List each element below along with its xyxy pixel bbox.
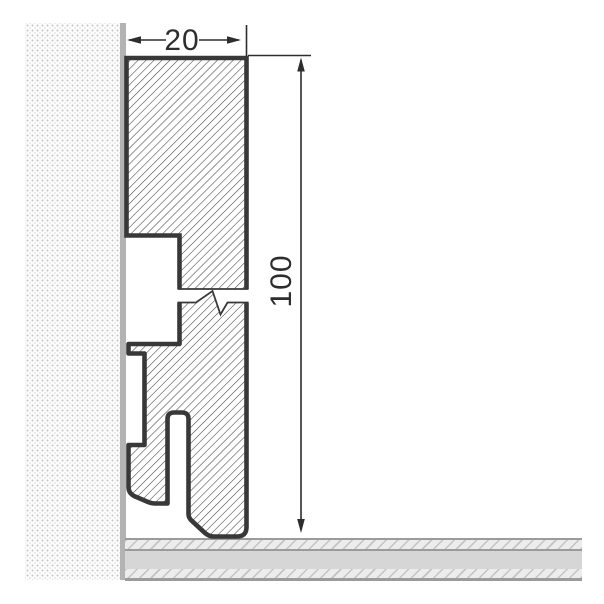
technical-drawing-canvas: 20 100 bbox=[0, 0, 604, 604]
arrow-right-icon bbox=[227, 36, 241, 44]
profile-lower-section bbox=[129, 291, 249, 537]
height-dimension: 100 bbox=[248, 56, 311, 534]
arrow-left-icon bbox=[127, 36, 141, 44]
arrow-up-icon bbox=[297, 58, 305, 72]
arrow-down-icon bbox=[297, 519, 305, 533]
profile-upper-hatch bbox=[127, 58, 247, 289]
profile-upper-section bbox=[127, 58, 249, 289]
width-dimension-label: 20 bbox=[164, 24, 199, 57]
height-dimension-label: 100 bbox=[265, 254, 298, 307]
skirting-profile-drawing: 20 100 bbox=[0, 0, 604, 604]
width-dimension: 20 bbox=[127, 24, 247, 57]
